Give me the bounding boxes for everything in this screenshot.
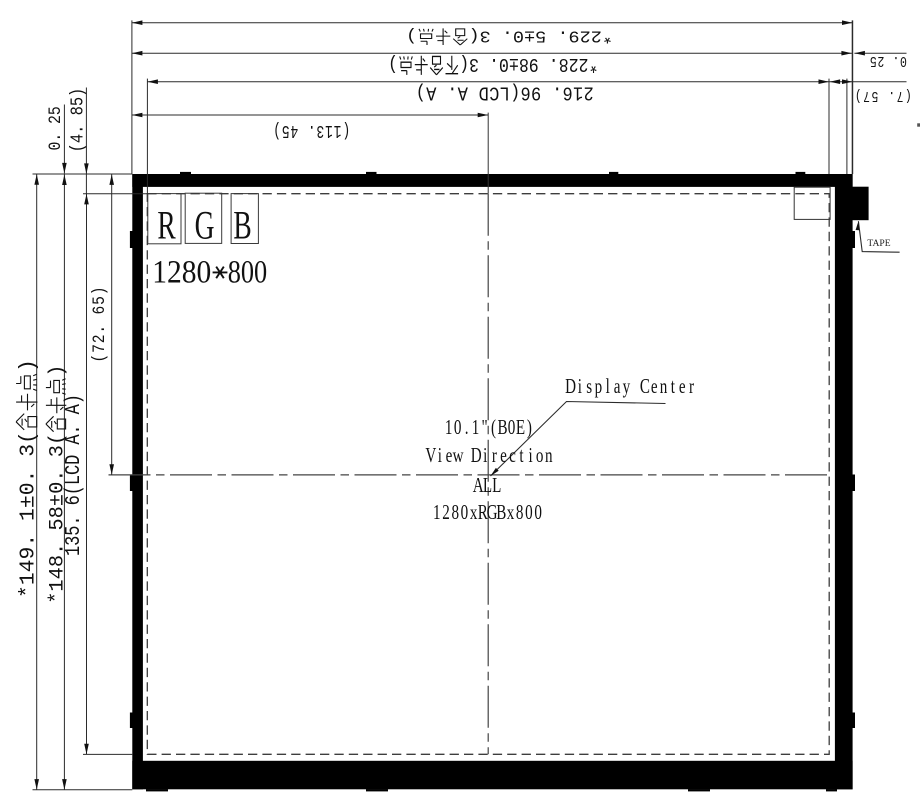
svg-text:0. 25: 0. 25 — [870, 51, 907, 68]
svg-text:(7. 57): (7. 57) — [855, 86, 912, 103]
svg-text:0. 25: 0. 25 — [45, 106, 66, 150]
svg-text:1280xRGBx800: 1280xRGBx800 — [433, 500, 542, 524]
svg-text:Display Center: Display Center — [565, 374, 695, 398]
svg-text:): ) — [47, 364, 70, 376]
svg-text:(113. 45): (113. 45) — [273, 120, 350, 141]
svg-text:216. 96(LCD A. A): 216. 96(LCD A. A) — [416, 81, 594, 102]
svg-text:*149. 1±0. 3(: *149. 1±0. 3( — [17, 431, 41, 598]
svg-text:135. 6(LCD A. A): 135. 6(LCD A. A) — [61, 394, 85, 556]
svg-text:(72. 65): (72. 65) — [90, 287, 110, 363]
svg-text:TAPE: TAPE — [867, 238, 890, 249]
svg-text:): ) — [17, 359, 41, 372]
svg-text:800: 800 — [228, 254, 268, 290]
svg-text:): ) — [406, 26, 417, 45]
svg-text:(4. 85): (4. 85) — [69, 88, 90, 153]
svg-text:View Direction: View Direction — [425, 443, 552, 467]
svg-text:B: B — [233, 204, 251, 248]
svg-text:*229. 5±0. 3(: *229. 5±0. 3( — [468, 26, 613, 45]
svg-text:1280: 1280 — [152, 254, 211, 290]
svg-text:*228. 98±0. 3(: *228. 98±0. 3( — [459, 53, 598, 74]
svg-text:G: G — [195, 204, 215, 248]
svg-text:R: R — [157, 204, 175, 248]
svg-text:ALL: ALL — [473, 474, 502, 498]
svg-text:): ) — [388, 53, 398, 74]
